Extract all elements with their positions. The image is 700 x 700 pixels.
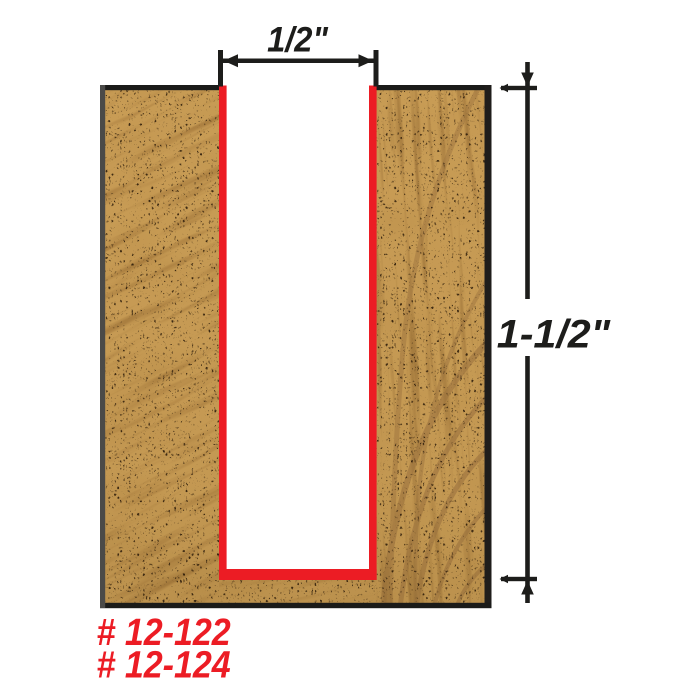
svg-text:# 12-124: # 12-124 bbox=[97, 643, 231, 686]
svg-text:1-1/2": 1-1/2" bbox=[497, 311, 611, 356]
svg-text:1/2": 1/2" bbox=[267, 20, 329, 60]
